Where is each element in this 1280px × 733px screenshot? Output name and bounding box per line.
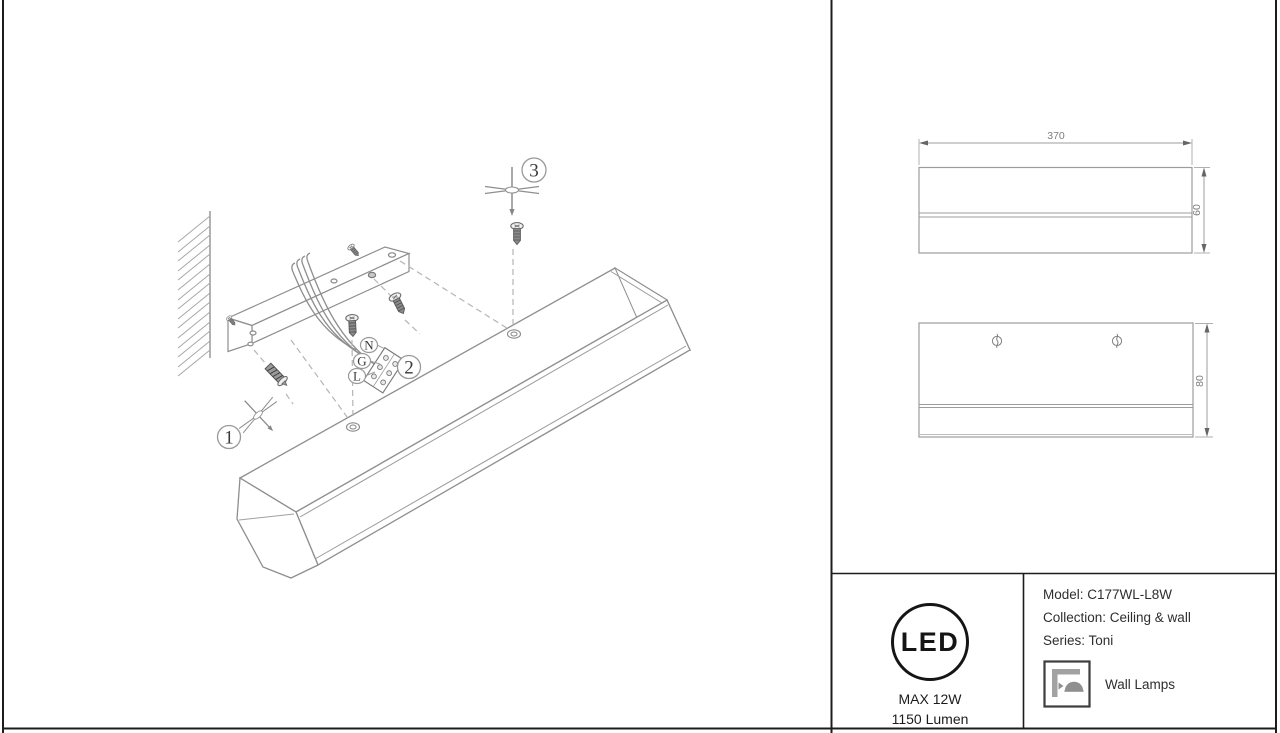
wall-hatch bbox=[178, 211, 210, 376]
wire-label-g: G bbox=[357, 354, 366, 369]
wire-label-l: L bbox=[353, 369, 361, 384]
screw-icon bbox=[388, 291, 409, 316]
led-badge: LED MAX 12W 1150 Lumen bbox=[852, 603, 1008, 727]
screw-icon bbox=[347, 243, 362, 258]
wall-lamp-icon bbox=[1043, 660, 1091, 708]
screw-icon bbox=[346, 314, 360, 337]
dim-height: 60 bbox=[1191, 204, 1203, 216]
led-logo: LED bbox=[891, 603, 969, 681]
product-info: Model: C177WL-L8W Collection: Ceiling & … bbox=[1043, 587, 1191, 708]
mounting-bracket bbox=[228, 247, 409, 352]
spec-sheet-page: N G L 1 2 3 370 60 bbox=[0, 0, 1280, 733]
callout-2-number: 2 bbox=[404, 358, 414, 379]
led-logo-text: LED bbox=[901, 627, 960, 658]
callout-1: 1 bbox=[218, 426, 241, 449]
lumen-label: 1150 Lumen bbox=[852, 711, 1008, 727]
dim-height: 80 bbox=[1194, 375, 1206, 387]
callout-2: 2 bbox=[398, 356, 421, 379]
dim-width: 370 bbox=[1047, 130, 1065, 142]
screw-hole bbox=[508, 330, 521, 338]
back-view-drawing: 80 bbox=[919, 323, 1213, 437]
collection-line: Collection: Ceiling & wall bbox=[1043, 610, 1191, 626]
model-line: Model: C177WL-L8W bbox=[1043, 587, 1191, 603]
series-line: Series: Toni bbox=[1043, 633, 1191, 649]
front-view-drawing: 370 60 bbox=[919, 130, 1210, 253]
callout-3-number: 3 bbox=[529, 161, 539, 182]
wire-label-n: N bbox=[364, 338, 374, 353]
callout-1-number: 1 bbox=[224, 428, 234, 449]
max-power-label: MAX 12W bbox=[852, 691, 1008, 707]
wall-anchor-icon bbox=[264, 362, 291, 390]
category-row: Wall Lamps bbox=[1043, 660, 1191, 708]
screw-icon bbox=[511, 223, 523, 245]
category-label: Wall Lamps bbox=[1105, 677, 1175, 692]
callout-3: 3 bbox=[522, 158, 546, 182]
screw-hole bbox=[347, 423, 360, 431]
